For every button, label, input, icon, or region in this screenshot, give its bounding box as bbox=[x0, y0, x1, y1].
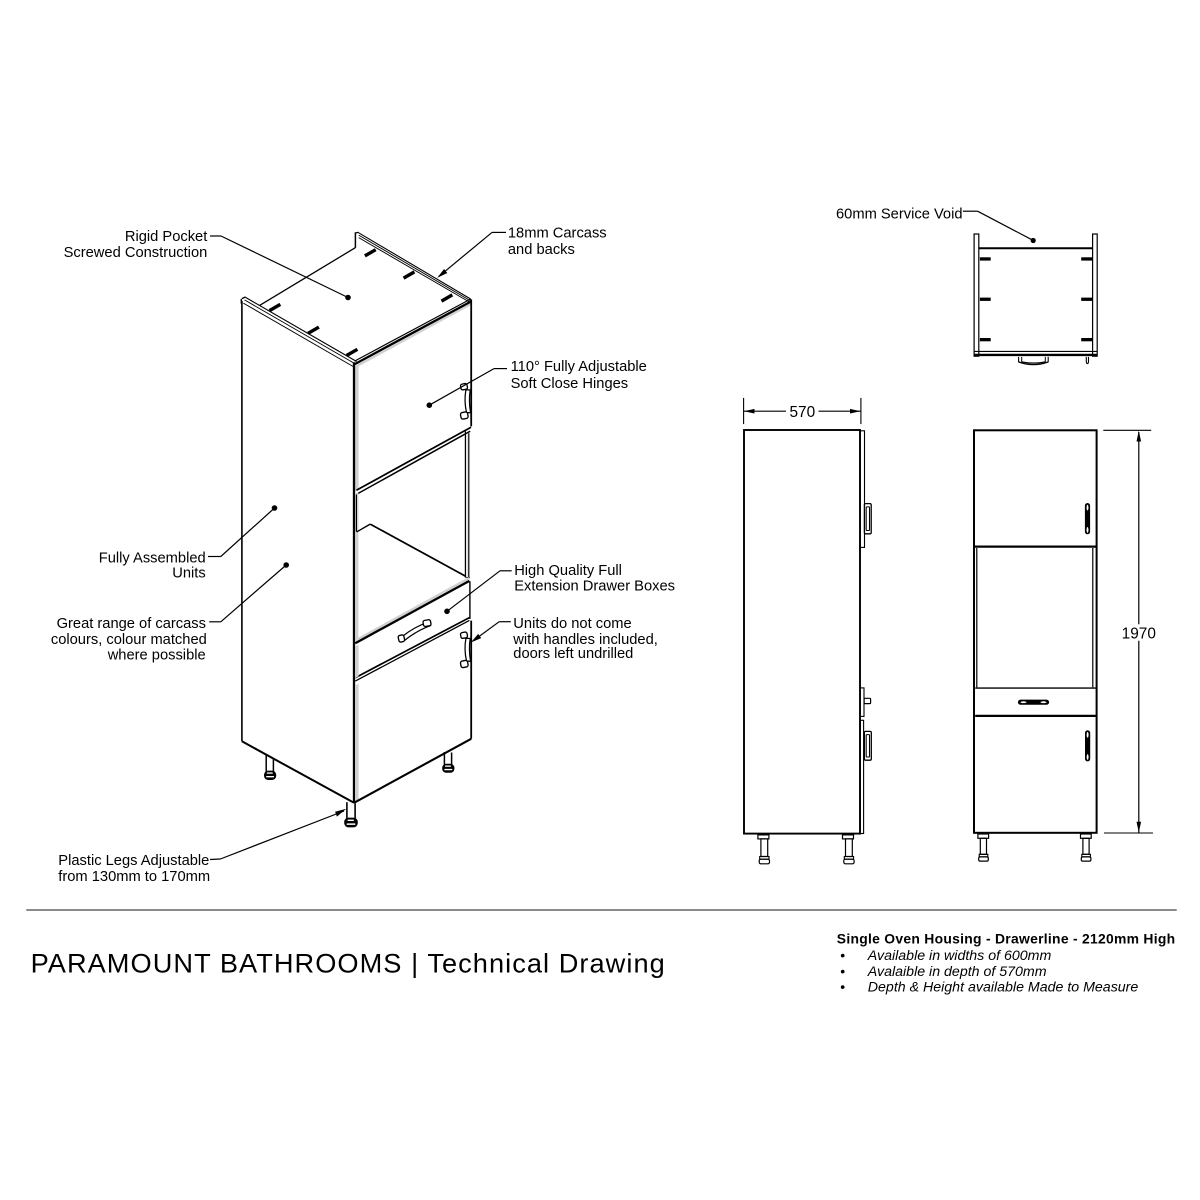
svg-text:18mm Carcass: 18mm Carcass bbox=[508, 226, 607, 242]
svg-text:570: 570 bbox=[789, 404, 815, 421]
svg-text:•: • bbox=[840, 963, 845, 979]
svg-text:Units: Units bbox=[172, 566, 205, 582]
svg-text:colours, colour matched: colours, colour matched bbox=[51, 632, 207, 648]
svg-text:•: • bbox=[840, 979, 845, 995]
svg-text:and backs: and backs bbox=[508, 242, 575, 258]
svg-text:1970: 1970 bbox=[1122, 625, 1156, 642]
svg-text:Units do not come: Units do not come bbox=[513, 616, 631, 632]
svg-text:Plastic Legs Adjustable: Plastic Legs Adjustable bbox=[58, 853, 209, 869]
svg-text:Avalaible in depth of 570mm: Avalaible in depth of 570mm bbox=[867, 964, 1047, 980]
svg-text:High Quality Full: High Quality Full bbox=[514, 563, 622, 579]
svg-text:Soft Close Hinges: Soft Close Hinges bbox=[511, 376, 629, 392]
svg-text:Great range of carcass: Great range of carcass bbox=[57, 616, 206, 632]
svg-text:Single Oven Housing - Drawerli: Single Oven Housing - Drawerline - 2120m… bbox=[837, 930, 1176, 946]
svg-text:Available in widths of 600mm: Available in widths of 600mm bbox=[867, 948, 1052, 964]
svg-text:PARAMOUNT BATHROOMS | Technica: PARAMOUNT BATHROOMS | Technical Drawing bbox=[31, 948, 666, 979]
svg-text:doors left undrilled: doors left undrilled bbox=[513, 646, 633, 662]
svg-text:Extension Drawer Boxes: Extension Drawer Boxes bbox=[514, 579, 675, 595]
svg-text:Rigid Pocket: Rigid Pocket bbox=[125, 229, 207, 245]
svg-text:Depth & Height available Made: Depth & Height available Made to Measure bbox=[868, 980, 1139, 996]
svg-text:110° Fully Adjustable: 110° Fully Adjustable bbox=[511, 359, 647, 375]
svg-text:Screwed Construction: Screwed Construction bbox=[64, 245, 208, 261]
svg-text:where possible: where possible bbox=[107, 647, 206, 663]
svg-text:•: • bbox=[840, 947, 845, 963]
svg-text:Fully Assembled: Fully Assembled bbox=[99, 550, 206, 566]
svg-text:from 130mm to 170mm: from 130mm to 170mm bbox=[58, 869, 210, 885]
svg-text:60mm Service Void: 60mm Service Void bbox=[836, 206, 963, 222]
